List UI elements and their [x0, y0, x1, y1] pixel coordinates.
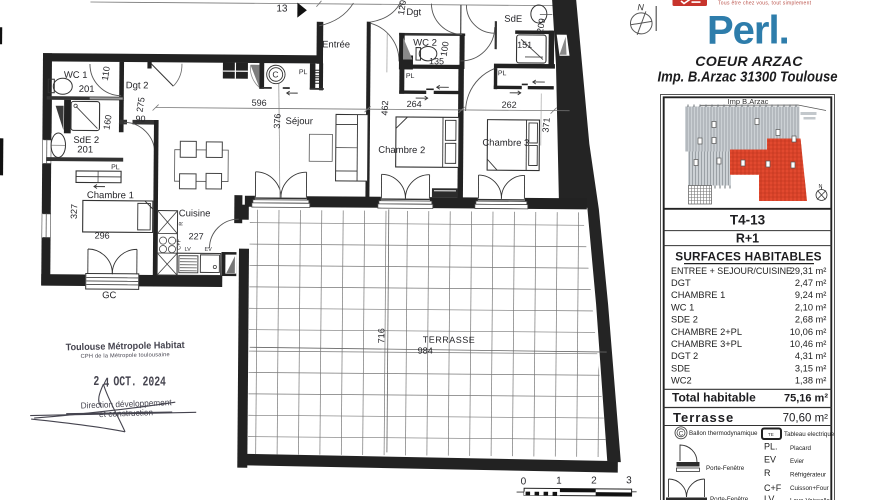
svg-text:m²: m² [816, 302, 827, 312]
svg-text:Perl.: Perl. [707, 9, 789, 53]
svg-text:PL: PL [299, 69, 308, 76]
svg-text:Ballon thermodynamique: Ballon thermodynamique [689, 430, 758, 437]
svg-text:R: R [179, 222, 185, 226]
svg-text:WC 1: WC 1 [671, 302, 694, 312]
svg-text:2,68: 2,68 [795, 315, 813, 325]
svg-text:C: C [272, 69, 278, 79]
svg-text:N: N [819, 184, 823, 190]
svg-text:4,31: 4,31 [795, 351, 813, 361]
svg-text:Séjour: Séjour [285, 116, 313, 127]
svg-text:PL: PL [111, 164, 120, 171]
svg-text:4: 4 [103, 375, 109, 391]
svg-text:TERRASSE: TERRASSE [423, 335, 476, 345]
svg-text:Chambre 1: Chambre 1 [87, 190, 134, 201]
svg-text:716: 716 [376, 328, 386, 343]
svg-text:227: 227 [189, 231, 204, 241]
svg-text:TE: TE [768, 432, 774, 437]
svg-text:SDE 2: SDE 2 [671, 315, 698, 325]
svg-text:Entrée: Entrée [322, 39, 350, 50]
svg-text:29,31: 29,31 [790, 266, 813, 276]
svg-text:596: 596 [252, 98, 267, 108]
svg-text:3,15: 3,15 [795, 363, 813, 373]
svg-text:0: 0 [521, 476, 527, 487]
svg-text:PL: PL [498, 70, 507, 77]
svg-text:SDE: SDE [671, 363, 690, 373]
svg-text:984: 984 [418, 346, 433, 356]
svg-text:SURFACES HABITABLES: SURFACES HABITABLES [675, 250, 821, 264]
svg-text:ENTREE + SEJOUR/CUISINE: ENTREE + SEJOUR/CUISINE [671, 266, 792, 276]
svg-text:3: 3 [626, 475, 632, 486]
svg-text:CHAMBRE 3+PL: CHAMBRE 3+PL [671, 339, 742, 349]
svg-text:N: N [637, 2, 644, 12]
svg-text:Imp. B.Arzac 31300 Toulouse: Imp. B.Arzac 31300 Toulouse [658, 70, 838, 86]
svg-text:PL.: PL. [764, 442, 778, 452]
svg-text:m²: m² [816, 363, 827, 373]
svg-text:201: 201 [77, 144, 93, 155]
svg-text:DGT: DGT [671, 278, 691, 288]
svg-text:2,47: 2,47 [795, 278, 813, 288]
svg-text:275: 275 [135, 96, 147, 112]
svg-text:Porte-Fenêtre: Porte-Fenêtre [710, 496, 749, 500]
svg-text:SdE: SdE [504, 14, 522, 25]
svg-text:C+F: C+F [176, 239, 182, 250]
svg-text:Evier: Evier [790, 458, 804, 465]
svg-text:R+1: R+1 [736, 231, 759, 245]
svg-text:WC2: WC2 [671, 376, 692, 386]
svg-text:70,60 m²: 70,60 m² [783, 413, 829, 425]
svg-text:10,46: 10,46 [790, 339, 813, 349]
svg-text:T4-13: T4-13 [730, 213, 766, 228]
svg-text:Cuisson+Four: Cuisson+Four [790, 485, 829, 492]
svg-text:1,38: 1,38 [795, 376, 813, 386]
svg-text:2: 2 [591, 475, 597, 486]
svg-text:Cuisine: Cuisine [179, 208, 211, 219]
svg-text:13: 13 [276, 3, 288, 14]
svg-text:EV: EV [204, 247, 212, 253]
svg-text:201: 201 [79, 84, 95, 95]
svg-text:2,10: 2,10 [795, 302, 813, 312]
svg-text:9,24: 9,24 [795, 290, 813, 300]
svg-text:75,16 m²: 75,16 m² [784, 393, 828, 405]
svg-text:C: C [679, 430, 684, 437]
svg-text:371: 371 [540, 117, 551, 133]
svg-text:10,06: 10,06 [790, 327, 813, 337]
svg-text:EV: EV [764, 455, 776, 465]
svg-text:C+F: C+F [764, 483, 782, 493]
svg-text:CHAMBRE 2+PL: CHAMBRE 2+PL [671, 327, 742, 337]
svg-text:PL: PL [406, 73, 415, 80]
svg-text:151: 151 [517, 40, 532, 50]
svg-text:Réfrigérateur: Réfrigérateur [790, 472, 826, 479]
svg-text:R: R [764, 468, 771, 478]
svg-text:GC: GC [102, 290, 116, 301]
svg-text:Tableau electrique: Tableau electrique [784, 431, 835, 438]
svg-text:1: 1 [556, 476, 562, 487]
svg-text:264: 264 [407, 99, 422, 109]
svg-text:CHAMBRE 1: CHAMBRE 1 [671, 290, 725, 300]
svg-text:Dgt: Dgt [406, 7, 421, 18]
svg-text:135: 135 [429, 56, 444, 66]
svg-text:DGT 2: DGT 2 [671, 351, 698, 361]
svg-text:327: 327 [69, 204, 80, 219]
svg-text:2: 2 [93, 374, 99, 390]
svg-text:262: 262 [502, 100, 517, 110]
svg-text:Placard: Placard [790, 445, 812, 452]
svg-text:COEUR ARZAC: COEUR ARZAC [695, 54, 803, 70]
svg-text:WC 2: WC 2 [413, 38, 437, 49]
svg-text:m²: m² [816, 376, 827, 386]
svg-text:Chambre 3: Chambre 3 [482, 138, 529, 149]
svg-text:90: 90 [135, 114, 145, 124]
svg-text:Chambre 2: Chambre 2 [378, 145, 425, 156]
svg-text:100: 100 [439, 41, 451, 57]
svg-text:Tous être chez vous, tout simp: Tous être chez vous, tout simplement [718, 1, 812, 7]
svg-text:m²: m² [816, 290, 827, 300]
svg-text:Total habitable: Total habitable [672, 391, 756, 405]
svg-text:m²: m² [816, 278, 827, 288]
svg-text:m²: m² [816, 266, 827, 276]
svg-text:Porte-Fenêtre: Porte-Fenêtre [706, 465, 745, 472]
svg-text:m²: m² [816, 351, 827, 361]
svg-text:m²: m² [816, 315, 827, 325]
svg-text:WC 1: WC 1 [64, 70, 88, 81]
svg-text:LV: LV [184, 247, 191, 253]
svg-text:Terrasse: Terrasse [673, 410, 734, 425]
svg-text:CPH de la Métropole toulousain: CPH de la Métropole toulousaine [81, 352, 170, 360]
svg-text:m²: m² [816, 339, 827, 349]
svg-text:296: 296 [95, 231, 110, 241]
svg-text:160: 160 [101, 114, 113, 130]
svg-text:462: 462 [380, 100, 391, 115]
svg-text:OCT. 2024: OCT. 2024 [113, 374, 166, 390]
svg-text:110: 110 [100, 66, 112, 82]
svg-text:LV: LV [764, 494, 774, 500]
svg-text:m²: m² [816, 327, 827, 337]
svg-text:Dgt 2: Dgt 2 [126, 80, 149, 91]
svg-text:376: 376 [272, 113, 283, 128]
